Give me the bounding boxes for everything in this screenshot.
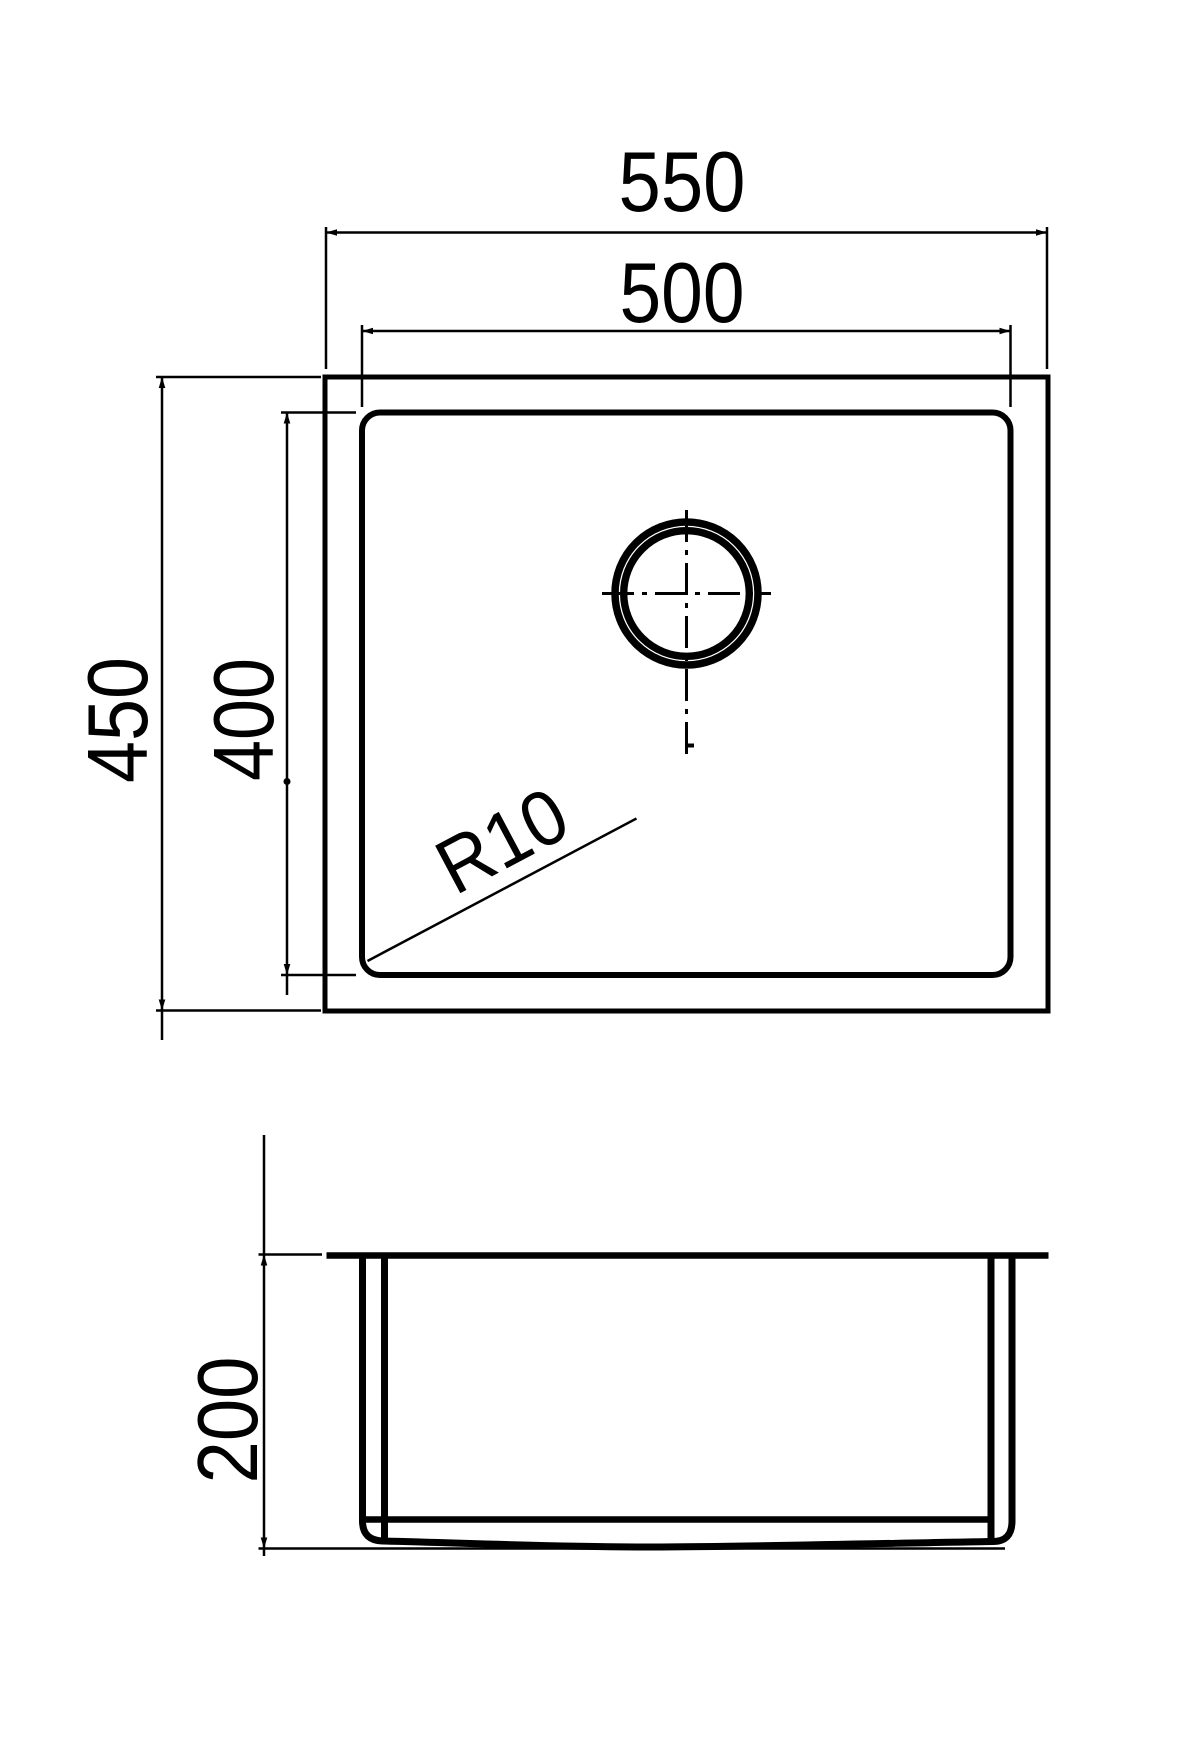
svg-text:550: 550 [619,135,746,230]
svg-text:400: 400 [197,658,292,781]
svg-text:200: 200 [181,1357,276,1484]
svg-text:450: 450 [71,657,166,783]
svg-text:500: 500 [620,246,745,341]
